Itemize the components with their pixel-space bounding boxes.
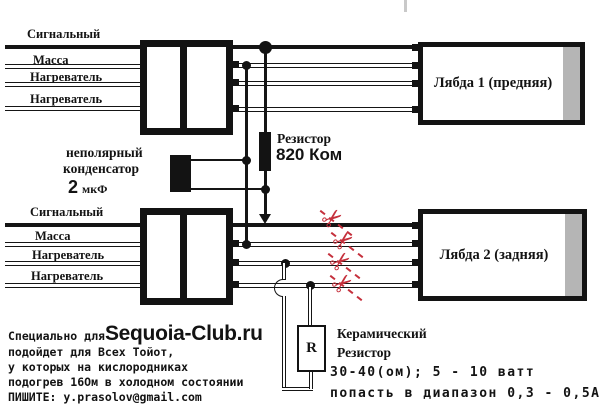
ceramic-label-line3: 30-40(ом); 5 - 10 ватт: [330, 365, 535, 380]
footer-line2: подойдет для Всех Тойот,: [8, 345, 174, 359]
ceramic-loop-wire: [308, 287, 312, 325]
ceramic-loop-wire: [309, 372, 313, 389]
ceramic-resistor-box: R: [297, 325, 326, 372]
capacitor-body: [170, 155, 191, 192]
heater2-wire-top-left: [5, 106, 140, 111]
footer-prefix: Специально для: [8, 329, 105, 343]
cut-mark-heater2: ✂: [324, 266, 368, 310]
capacitor-value: 2 мкФ: [68, 177, 107, 198]
junction-dot-ground-bottom: [242, 240, 251, 249]
lambda2-pin-stub: [412, 240, 420, 247]
capacitor-value-unit: мкФ: [82, 182, 107, 196]
junction-dot-cap-signal: [261, 185, 270, 194]
capacitor-label-line1: неполярный: [66, 145, 143, 161]
lambda1-gray-strip: [563, 47, 580, 120]
lambda1-box: Лябда 1 (предняя): [418, 42, 585, 125]
lambda1-pin-stub: [412, 106, 420, 113]
wire-hop-arc: [274, 279, 286, 297]
signal-wire-top-left: [5, 45, 140, 49]
connector1-pin-stub: [231, 61, 239, 68]
wire-label-signal-top: Сигнальный: [27, 27, 100, 42]
connector1-pin-stub: [231, 79, 239, 86]
footer-line1: Специально для Sequoia-Club.ru: [8, 322, 263, 346]
connector1-divider: [180, 47, 187, 128]
heater1-wire-bottom-right: [233, 261, 418, 266]
connector-block-1: [140, 40, 233, 135]
capacitor-label-line2: конденсатор: [63, 161, 139, 177]
scissors-icon: ✂: [328, 224, 360, 257]
lambda1-label: Лябда 1 (предняя): [434, 75, 569, 92]
lambda1-pin-stub: [412, 62, 420, 69]
heater2-wire-bottom-left: [5, 283, 140, 288]
lambda2-box: Лябда 2 (задняя): [418, 209, 587, 301]
resistor-value: 820 Ком: [276, 145, 342, 165]
connector1-pin-stub: [231, 105, 239, 112]
footer-line5: ПИШИТЕ: y.prasolov@gmail.com: [8, 390, 202, 404]
ceramic-loop-wire: [282, 296, 286, 389]
capacitor-wire-bottom: [191, 188, 265, 190]
footer-line4: подогрев 16Ом в холодном состоянии: [8, 375, 243, 389]
signal-link-arrowhead: [259, 214, 271, 224]
capacitor-wire-top: [191, 159, 246, 161]
connector2-pin-stub: [231, 281, 239, 288]
ceramic-label-line4: попасть в диапазон 0,3 - 0,5А: [330, 386, 600, 401]
ground-wire-bottom-left: [5, 242, 140, 247]
ground-link-line: [245, 65, 248, 244]
ceramic-loop-wire: [282, 263, 286, 280]
junction-dot-ground: [242, 61, 251, 70]
footer-brand: Sequoia-Club.ru: [105, 322, 263, 346]
heater1-wire-bottom-left: [5, 261, 140, 266]
wire-label-heater2-top: Нагреватель: [30, 92, 102, 107]
connector2-divider: [180, 215, 187, 298]
lambda1-pin-stub: [412, 44, 420, 51]
scissors-icon: ✂: [317, 202, 349, 235]
ground-wire-top-right: [233, 63, 418, 68]
lambda2-pin-stub: [412, 281, 420, 288]
lambda2-pin-stub: [412, 259, 420, 266]
connector-block-2: [140, 208, 233, 305]
lambda2-label: Лябда 2 (задняя): [440, 247, 566, 264]
heater2-wire-bottom-right: [233, 283, 418, 288]
signal-wire-bottom-left: [5, 223, 140, 227]
cut-dash-line: [328, 253, 361, 279]
lambda2-pin-stub: [412, 222, 420, 229]
ceramic-label-line2: Резистор: [337, 345, 391, 361]
capacitor-value-number: 2: [68, 177, 78, 197]
heater2-wire-top-right: [233, 107, 418, 112]
heater1-wire-top-left: [5, 82, 140, 87]
ceramic-resistor-symbol: R: [306, 340, 317, 357]
ground-wire-bottom-right: [233, 242, 418, 247]
junction-dot-signal: [259, 41, 272, 54]
lambda2-gray-strip: [565, 214, 582, 296]
lambda1-pin-stub: [412, 80, 420, 87]
wire-label-signal-bottom: Сигнальный: [30, 205, 103, 220]
ground-wire-top-left: [5, 64, 140, 69]
cut-mark-heater1: ✂: [322, 244, 366, 288]
top-tick-mark: [404, 0, 407, 12]
footer-line3: у которых на кислородниках: [8, 360, 188, 374]
connector2-pin-stub: [231, 240, 239, 247]
wiring-diagram: Сигнальный Масса Нагреватель Нагреватель…: [0, 0, 600, 405]
cut-dash-line: [330, 275, 363, 301]
wire-label-heater2-bottom: Нагреватель: [31, 269, 103, 284]
connector2-pin-stub: [231, 259, 239, 266]
heater1-wire-top-right: [233, 81, 418, 86]
resistor-820k-body: [259, 132, 271, 171]
ceramic-label-line1: Керамический: [337, 326, 427, 342]
junction-dot-cap-ground: [242, 156, 251, 165]
